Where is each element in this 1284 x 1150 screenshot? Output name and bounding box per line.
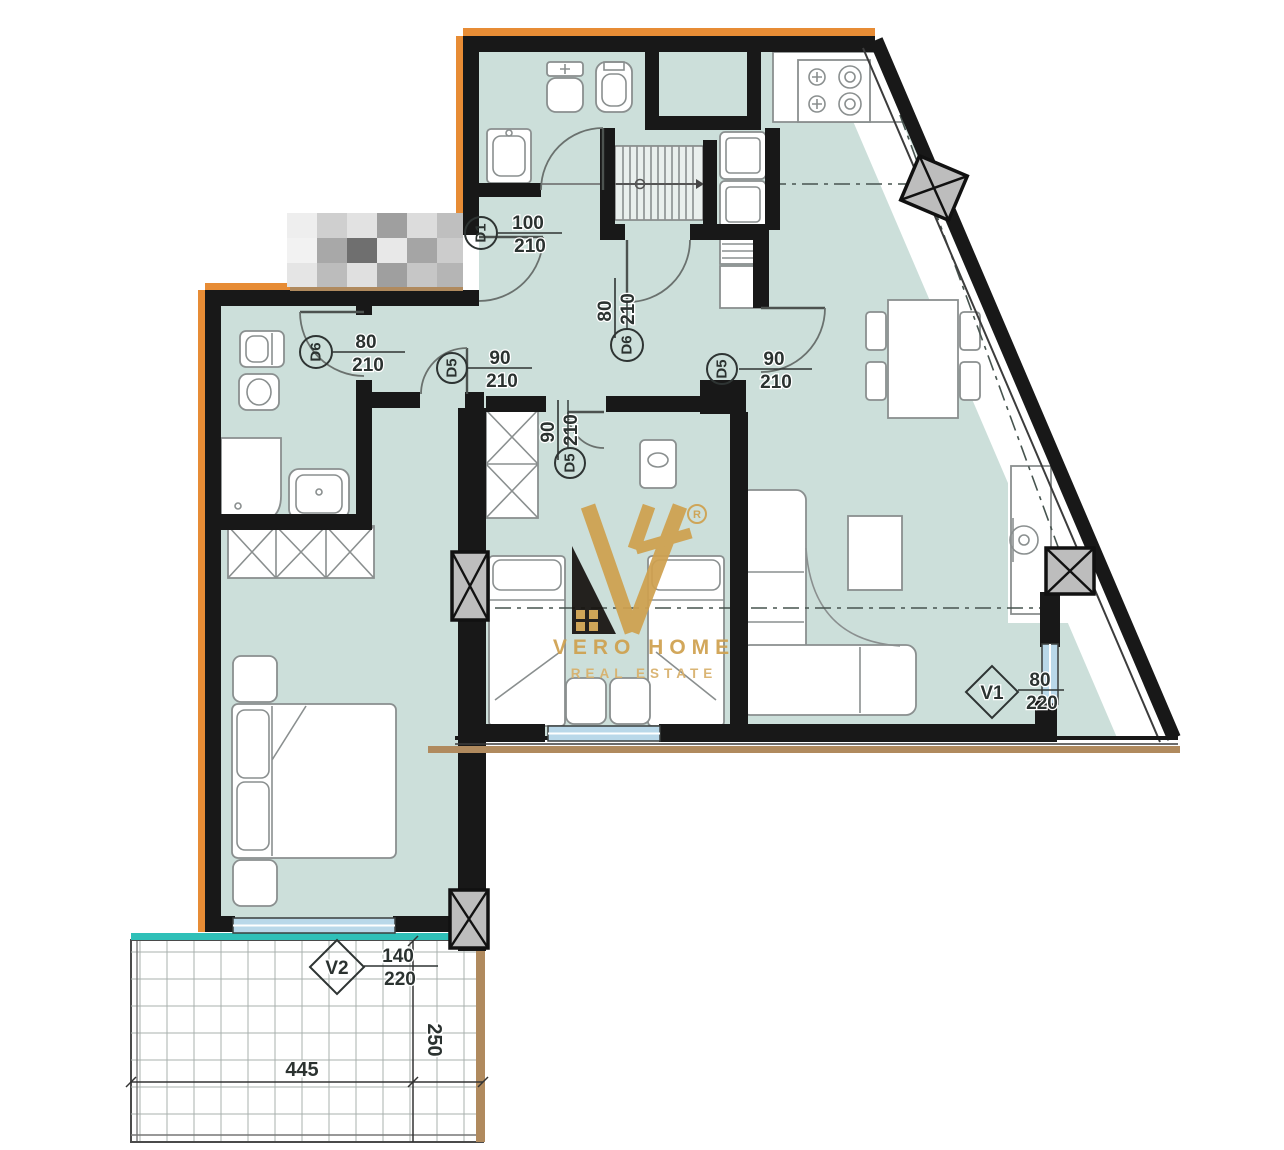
svg-text:D6: D6 <box>308 342 325 361</box>
svg-text:90: 90 <box>763 349 784 370</box>
svg-text:R: R <box>693 509 701 521</box>
svg-text:D6: D6 <box>619 335 636 354</box>
svg-text:V2: V2 <box>325 958 348 979</box>
stove <box>798 60 870 122</box>
dining-chair <box>866 312 886 350</box>
svg-text:210: 210 <box>561 414 582 446</box>
logo-tagline: REAL ESTATE <box>571 666 718 681</box>
shaft-south <box>450 890 488 948</box>
svg-text:220: 220 <box>384 969 416 990</box>
floor-plan-image: 445 250 <box>0 0 1284 1150</box>
dining-table <box>888 300 958 418</box>
svg-text:140: 140 <box>382 946 414 967</box>
bath-sink <box>289 469 349 519</box>
shaft-hall <box>452 552 488 620</box>
window-v2-bedroom <box>233 918 395 933</box>
coffee-table <box>848 516 902 590</box>
shaft-living <box>1046 548 1094 594</box>
double-bed <box>232 704 396 858</box>
nightstand <box>233 656 277 702</box>
wc-sink <box>487 129 531 183</box>
svg-text:210: 210 <box>760 372 792 393</box>
closet <box>486 410 538 518</box>
balcony-edge-tan <box>476 941 485 1142</box>
floor-plan-svg: 445 250 <box>0 0 1284 1150</box>
bath-bidet <box>239 374 279 410</box>
window-bedroom2 <box>548 726 660 741</box>
dresser <box>640 440 676 488</box>
svg-text:100: 100 <box>512 213 544 234</box>
nightstand <box>233 860 277 906</box>
shower <box>221 438 281 522</box>
svg-text:90: 90 <box>489 348 510 369</box>
bedside-table <box>610 678 650 724</box>
svg-text:210: 210 <box>618 293 639 325</box>
svg-text:D5: D5 <box>562 453 579 472</box>
svg-text:210: 210 <box>514 236 546 257</box>
bath-toilet <box>240 331 284 367</box>
svg-text:80: 80 <box>355 332 376 353</box>
svg-text:210: 210 <box>352 355 384 376</box>
balcony-edge-teal <box>131 933 483 940</box>
wc-toilet <box>547 62 583 112</box>
svg-text:210: 210 <box>486 371 518 392</box>
bedside-table <box>566 678 606 724</box>
dining-chair <box>960 362 980 400</box>
balcony: 445 250 <box>126 933 488 1142</box>
svg-text:90: 90 <box>538 421 559 442</box>
wc-bidet <box>596 62 632 112</box>
svg-text:V1: V1 <box>980 683 1004 704</box>
logo-name: VERO HOME <box>553 636 735 659</box>
svg-text:220: 220 <box>1026 693 1058 714</box>
dining-chair <box>960 312 980 350</box>
wardrobe <box>228 526 374 578</box>
svg-text:D5: D5 <box>714 359 731 378</box>
svg-text:80: 80 <box>595 300 616 321</box>
svg-text:80: 80 <box>1029 670 1050 691</box>
svg-text:D5: D5 <box>444 358 461 377</box>
blur-patch <box>287 213 463 287</box>
dining-chair <box>866 362 886 400</box>
balcony-width-dim: 445 <box>285 1059 318 1081</box>
svg-text:D1: D1 <box>473 223 490 242</box>
balcony-depth-dim: 250 <box>423 1023 445 1056</box>
